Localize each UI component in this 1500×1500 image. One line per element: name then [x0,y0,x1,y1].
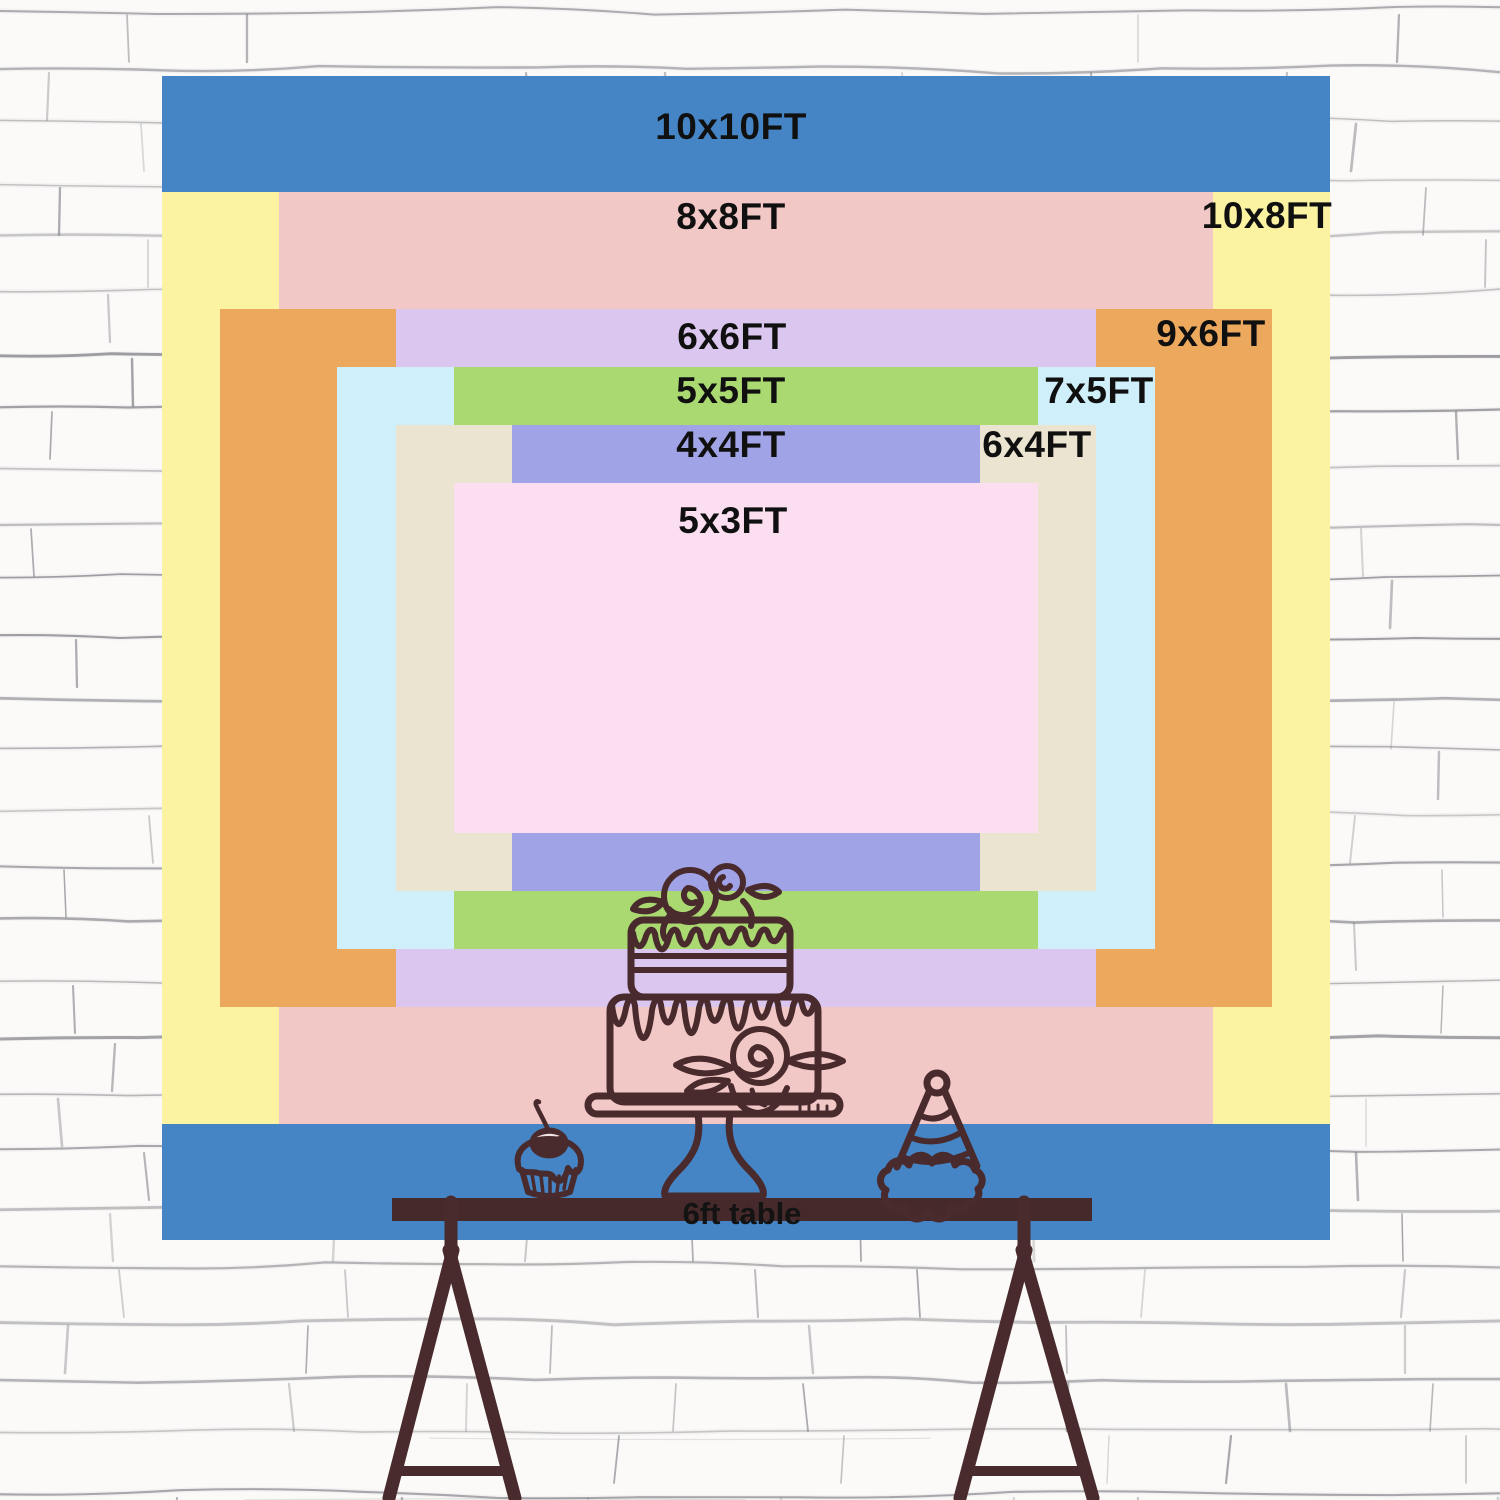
size-label-6x4ft: 6x4FT [982,424,1091,466]
table-length-label: 6ft table [683,1196,802,1232]
size-label-9x6ft: 9x6FT [1156,313,1265,355]
size-label-7x5ft: 7x5FT [1044,370,1153,412]
size-label-5x3ft: 5x3FT [678,500,787,542]
size-label-8x8ft: 8x8FT [676,196,785,238]
size-label-5x5ft: 5x5FT [676,370,785,412]
size-label-10x8ft: 10x8FT [1202,195,1333,237]
size-label-6x6ft: 6x6FT [677,316,786,358]
size-label-10x10ft: 10x10FT [655,106,807,148]
size-label-4x4ft: 4x4FT [676,424,785,466]
backdrop-size-chart-image: { "backdrop": { "label_color": "#101010"… [0,0,1500,1500]
size-label-layer: 10x10FT10x8FT8x8FT9x6FT6x6FT7x5FT5x5FT6x… [0,0,1500,1500]
